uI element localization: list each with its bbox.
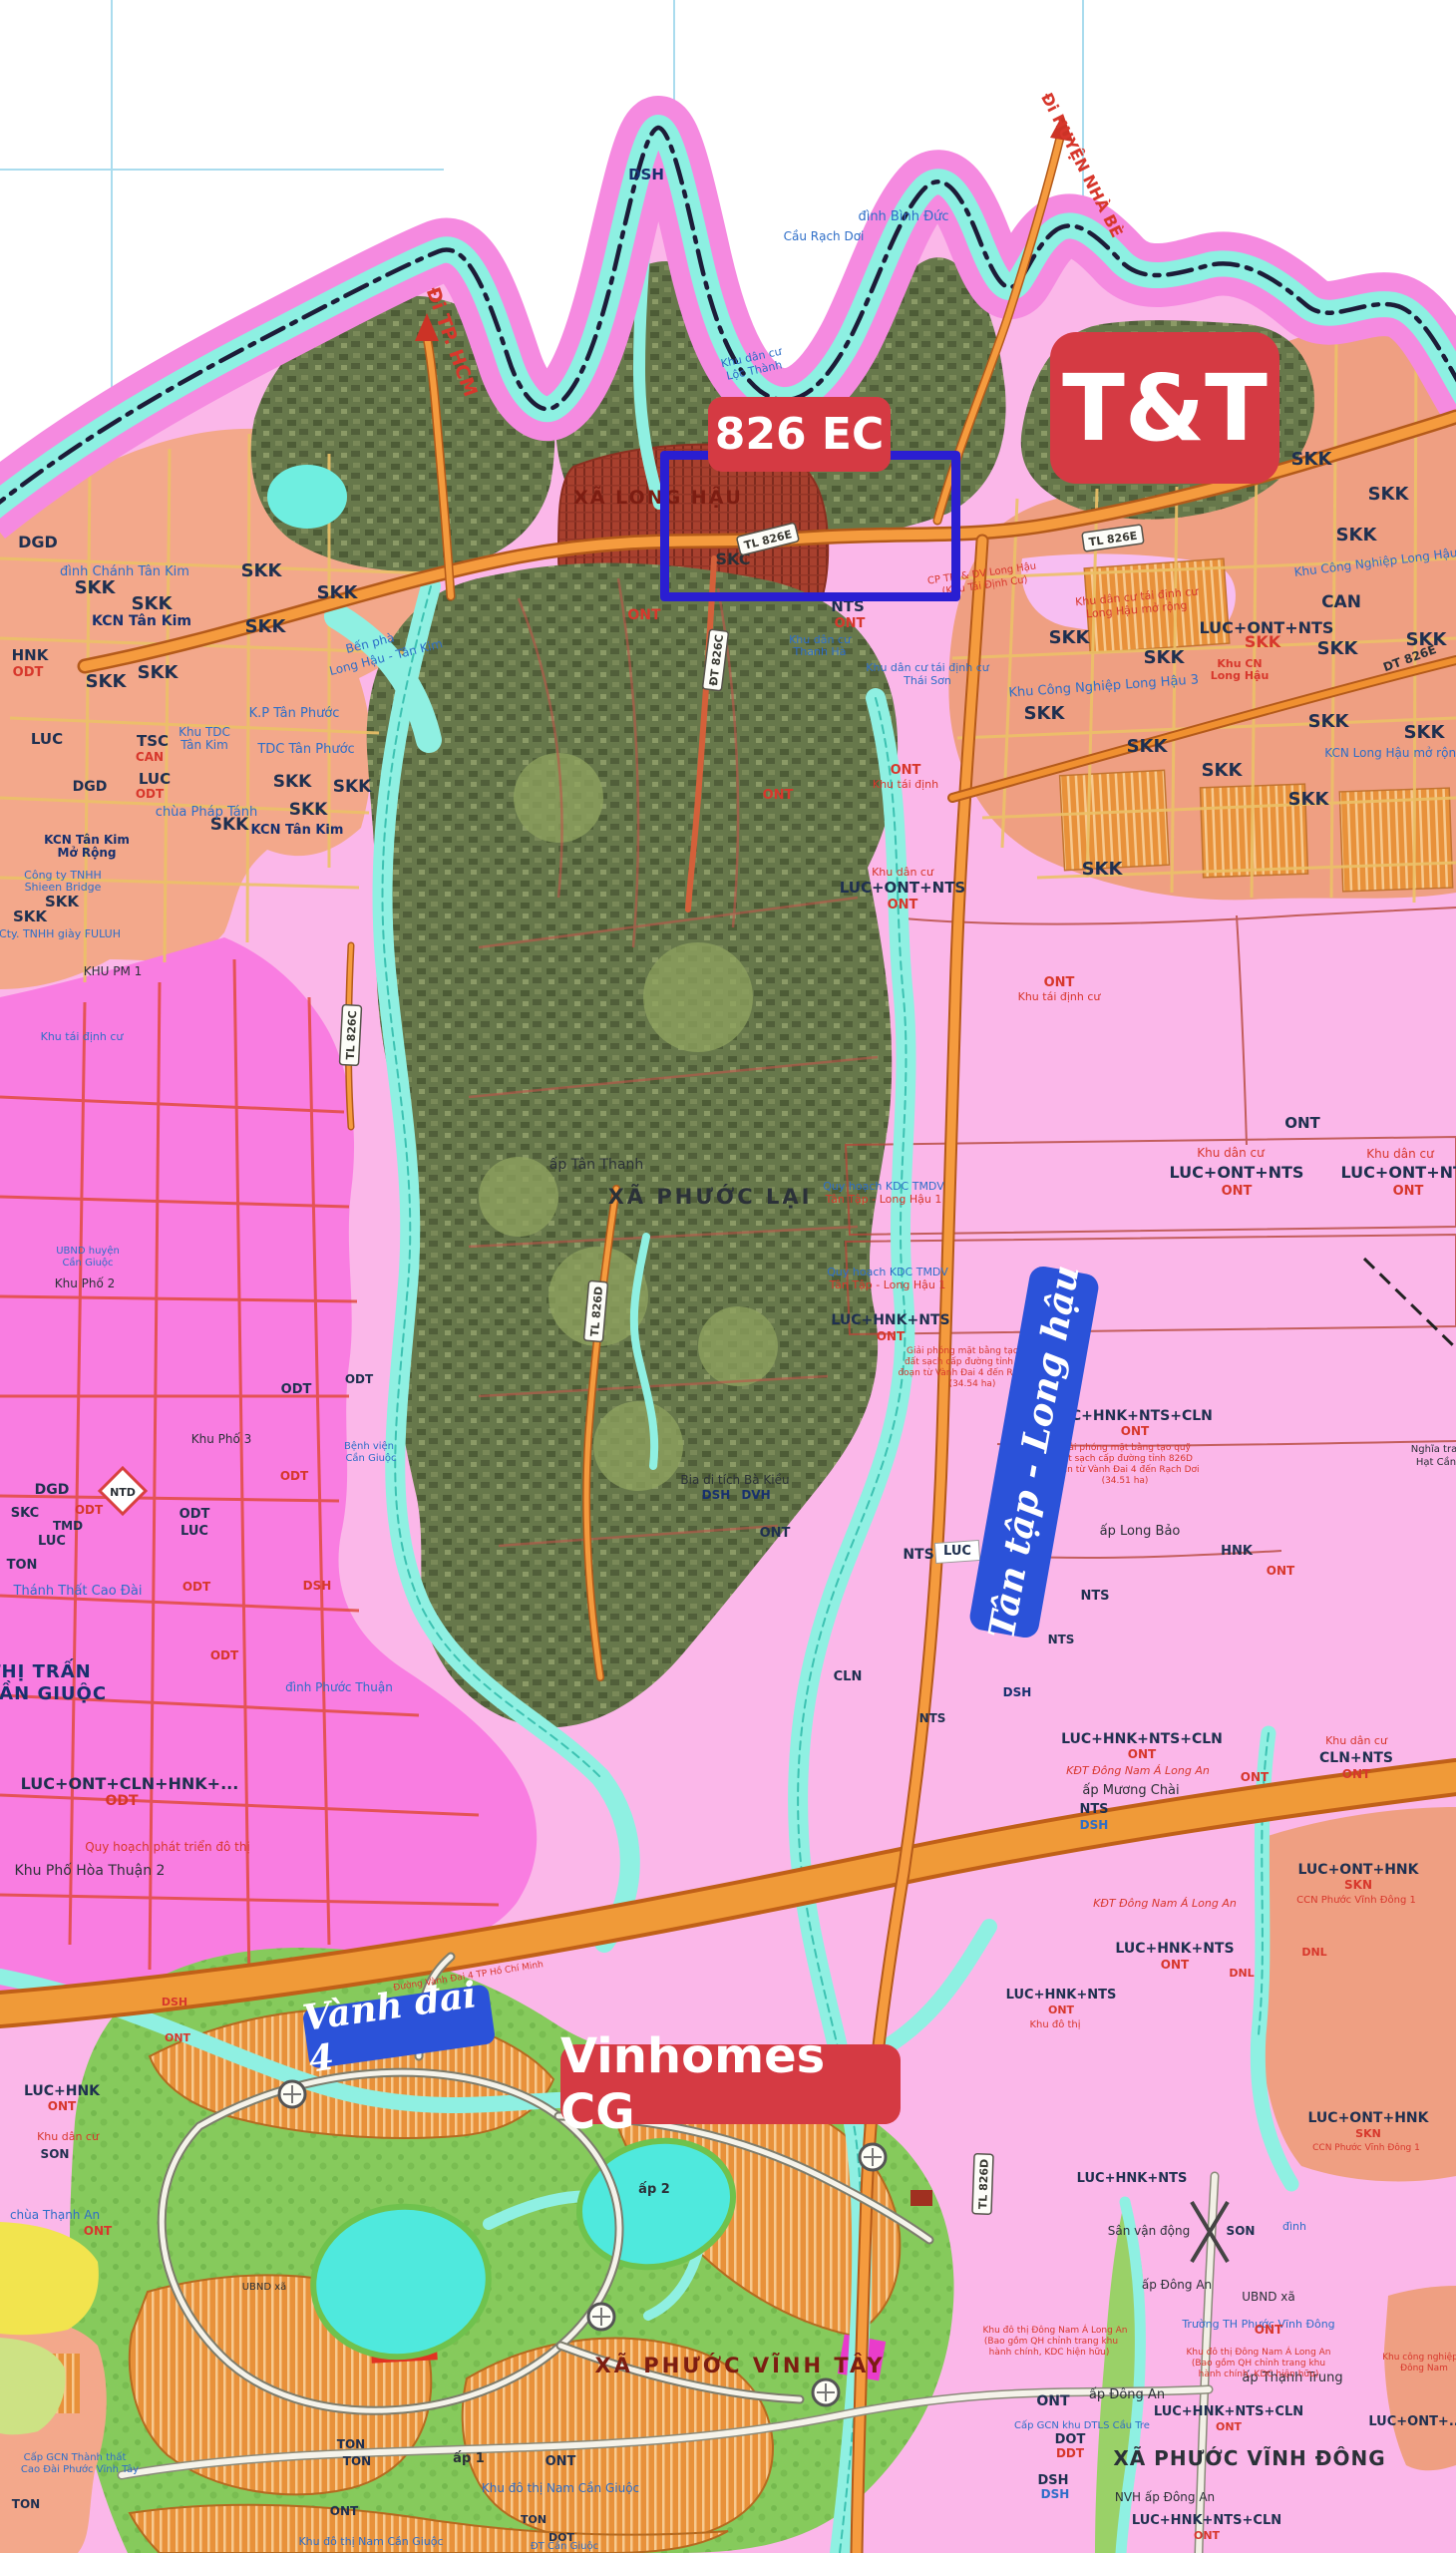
svg-text:Tân Tập - Long Hậu 1: Tân Tập - Long Hậu 1 [825, 1193, 942, 1206]
svg-text:đất sạch cấp đường tỉnh 826D: đất sạch cấp đường tỉnh 826D [1057, 1453, 1193, 1464]
svg-text:Cao Đài Phước Vĩnh Tây: Cao Đài Phước Vĩnh Tây [21, 2463, 139, 2475]
svg-text:ODT: ODT [136, 787, 165, 801]
svg-text:TMD: TMD [53, 1519, 83, 1533]
svg-text:SKK: SKK [13, 908, 48, 925]
svg-text:CAN: CAN [1321, 592, 1361, 612]
highlight-rectangle-826ec [660, 451, 960, 601]
svg-text:Khu dân cư: Khu dân cư [1366, 1147, 1435, 1161]
svg-text:Long Hậu: Long Hậu [1211, 669, 1270, 682]
svg-text:TON: TON [337, 2437, 365, 2451]
svg-text:ấp 2: ấp 2 [638, 2182, 670, 2197]
svg-text:KĐT Đông Nam Á Long An: KĐT Đông Nam Á Long An [1066, 1764, 1210, 1777]
svg-text:XÃ PHƯỚC LẠI: XÃ PHƯỚC LẠI [608, 1184, 813, 1209]
svg-text:LUC: LUC [181, 1524, 208, 1539]
svg-text:ONT: ONT [888, 898, 918, 912]
svg-text:ONT: ONT [1393, 1184, 1424, 1199]
svg-text:UBND huyện: UBND huyện [56, 1245, 120, 1257]
svg-text:ấp 1: ấp 1 [453, 2451, 485, 2466]
svg-text:ODT: ODT [280, 1469, 309, 1483]
svg-text:CẦN GIUỘC: CẦN GIUỘC [0, 1680, 107, 1704]
svg-text:K.P Tân Phước: K.P Tân Phước [249, 706, 340, 721]
svg-text:Tân Kim: Tân Kim [180, 738, 228, 752]
svg-text:SKK: SKK [132, 593, 174, 614]
svg-text:Tân Tập - Long Hậu 1: Tân Tập - Long Hậu 1 [829, 1278, 946, 1291]
svg-text:Hạt Cần: Hạt Cần [1416, 1456, 1456, 1468]
svg-text:CLN+NTS: CLN+NTS [1319, 1750, 1393, 1766]
svg-text:TON: TON [343, 2454, 371, 2468]
svg-text:Thái Sơn: Thái Sơn [903, 674, 951, 687]
svg-text:Cty. TNHH giày FULUH: Cty. TNHH giày FULUH [0, 927, 121, 940]
svg-text:Thánh Thất Cao Đài: Thánh Thất Cao Đài [13, 1584, 143, 1599]
svg-text:NTD: NTD [110, 1486, 136, 1499]
svg-text:SKK: SKK [1404, 722, 1446, 743]
svg-text:SKK: SKK [317, 582, 359, 603]
svg-text:SKK: SKK [1308, 711, 1350, 732]
svg-text:LUC+ONT+NTS: LUC+ONT+NTS [1341, 1163, 1456, 1182]
svg-text:ONT: ONT [835, 616, 866, 631]
svg-text:CCN Phước Vĩnh Đông 1: CCN Phước Vĩnh Đông 1 [1312, 2142, 1420, 2153]
svg-text:SKK: SKK [289, 800, 328, 820]
svg-text:DVH: DVH [741, 1488, 770, 1502]
svg-text:NTS: NTS [1048, 1633, 1075, 1646]
svg-text:DGD: DGD [35, 1482, 70, 1498]
svg-text:chùa Thạnh An: chùa Thạnh An [10, 2208, 100, 2222]
svg-text:NTS: NTS [1080, 1589, 1109, 1604]
svg-text:ấp Mương Chài: ấp Mương Chài [1082, 1783, 1179, 1798]
svg-text:DSH: DSH [702, 1488, 731, 1502]
svg-text:SKK: SKK [75, 577, 117, 598]
svg-text:ODT: ODT [281, 1382, 312, 1397]
svg-text:ODT: ODT [182, 1580, 211, 1594]
svg-text:DSH: DSH [162, 1996, 187, 2008]
svg-text:TDC Tân Phước: TDC Tân Phước [256, 742, 354, 757]
svg-text:KCN Tân Kim: KCN Tân Kim [44, 833, 130, 847]
svg-text:DSH: DSH [303, 1579, 332, 1593]
svg-text:LUC+ONT+CLN+HNK+...: LUC+ONT+CLN+HNK+... [21, 1774, 239, 1793]
svg-text:Bia di tích Bà Kiều: Bia di tích Bà Kiều [680, 1473, 789, 1487]
svg-text:DOT: DOT [1055, 2432, 1086, 2447]
svg-text:SKK: SKK [333, 777, 372, 797]
svg-text:LUC: LUC [38, 1534, 66, 1549]
svg-text:ONT: ONT [1284, 1114, 1320, 1132]
svg-text:DNL: DNL [1229, 1967, 1254, 1980]
svg-text:Giải phóng mặt bằng tạo quỹ: Giải phóng mặt bằng tạo quỹ [1059, 1442, 1192, 1453]
svg-text:LUC+ONT+NTS: LUC+ONT+NTS [1170, 1163, 1304, 1182]
svg-text:LUC+HNK+NTS: LUC+HNK+NTS [1077, 2171, 1188, 2186]
svg-text:KCN Long Hậu mở rộng: KCN Long Hậu mở rộng [1324, 746, 1456, 760]
svg-text:Quy hoạch KDC TMDV: Quy hoạch KDC TMDV [823, 1180, 944, 1193]
svg-text:Sân vận động: Sân vận động [1108, 2224, 1190, 2238]
svg-text:DGD: DGD [73, 779, 108, 795]
svg-text:ĐT Cần Giuộc: ĐT Cần Giuộc [531, 2540, 598, 2552]
svg-text:Khu đô thị: Khu đô thị [1029, 2018, 1080, 2030]
svg-text:Khu Phố Hòa Thuận 2: Khu Phố Hòa Thuận 2 [15, 1862, 166, 1879]
svg-text:SKK: SKK [1336, 525, 1378, 546]
svg-text:ODT: ODT [345, 1372, 374, 1386]
svg-text:Khu dân cư: Khu dân cư [872, 866, 934, 879]
svg-text:LUC+ONT+NTS: LUC+ONT+NTS [840, 879, 965, 897]
svg-text:TON: TON [12, 2497, 40, 2511]
svg-text:THỊ TRẤN: THỊ TRẤN [0, 1658, 92, 1682]
svg-text:ONT: ONT [1194, 2529, 1221, 2542]
svg-text:LUC+HNK: LUC+HNK [24, 2083, 101, 2099]
svg-text:SKK: SKK [1144, 647, 1186, 668]
svg-text:CCN Phước Vĩnh Đông 1: CCN Phước Vĩnh Đông 1 [1296, 1894, 1416, 1906]
svg-text:SKN: SKN [1355, 2127, 1381, 2140]
svg-text:ONT: ONT [546, 2454, 576, 2469]
svg-text:SON: SON [41, 2147, 70, 2161]
svg-text:CAN: CAN [136, 750, 164, 764]
svg-text:Khu tái định cư: Khu tái định cư [41, 1030, 125, 1043]
svg-text:LUC+HNK+NTS: LUC+HNK+NTS [1006, 1988, 1117, 2003]
svg-text:SKK: SKK [45, 893, 80, 911]
svg-text:DSH: DSH [628, 166, 664, 183]
svg-text:KCN Tân Kim: KCN Tân Kim [92, 613, 191, 629]
svg-text:Khu Phố 3: Khu Phố 3 [191, 1432, 252, 1446]
svg-text:ONT: ONT [760, 1526, 791, 1541]
svg-text:ODT: ODT [75, 1503, 104, 1517]
svg-text:LUC: LUC [943, 1544, 971, 1559]
svg-text:DSH: DSH [1041, 2487, 1070, 2501]
svg-text:LUC: LUC [139, 770, 171, 788]
svg-text:TON: TON [7, 1558, 38, 1573]
svg-text:(34.54 ha): (34.54 ha) [949, 1379, 996, 1389]
svg-text:LUC+ONT+NTS: LUC+ONT+NTS [1200, 618, 1334, 637]
svg-text:ONT: ONT [1048, 2004, 1075, 2016]
svg-text:SKK: SKK [245, 616, 287, 637]
svg-text:ONT: ONT [1161, 1958, 1190, 1972]
svg-text:ONT: ONT [763, 788, 794, 803]
svg-text:ONT: ONT [84, 2224, 113, 2238]
svg-text:Thanh Hà: Thanh Hà [793, 645, 847, 658]
svg-text:SKK: SKK [1127, 736, 1169, 757]
svg-text:Cầu Rạch Dơi: Cầu Rạch Dơi [784, 229, 865, 243]
svg-text:SKN: SKN [1344, 1878, 1372, 1892]
svg-text:LUC+HNK+NTS+CLN: LUC+HNK+NTS+CLN [1154, 2404, 1303, 2419]
svg-text:hành chính, KDC hiện hữu): hành chính, KDC hiện hữu) [989, 2347, 1110, 2358]
svg-text:ODT: ODT [180, 1507, 210, 1522]
svg-text:UBND xã: UBND xã [1242, 2290, 1295, 2304]
svg-text:Cần Giuộc: Cần Giuộc [62, 1257, 113, 1269]
svg-text:DSH: DSH [1003, 1685, 1032, 1699]
svg-text:chùa Pháp Tánh: chùa Pháp Tánh [156, 805, 257, 820]
svg-text:ONT: ONT [165, 2031, 191, 2044]
svg-text:Bệnh viện: Bệnh viện [344, 1440, 394, 1452]
svg-text:HNK: HNK [12, 646, 50, 664]
svg-text:Cấp GCN khu DTLS Cầu Tre: Cấp GCN khu DTLS Cầu Tre [1014, 2419, 1150, 2431]
svg-text:TL 826D: TL 826D [976, 2159, 991, 2210]
svg-text:Đông Nam: Đông Nam [1400, 2363, 1448, 2373]
svg-text:Khu công nghiệp: Khu công nghiệp [1382, 2352, 1456, 2363]
svg-text:đình Phước Thuận: đình Phước Thuận [285, 1680, 393, 1694]
svg-text:NTS: NTS [903, 1547, 933, 1563]
svg-text:XÃ PHƯỚC VĨNH ĐÔNG: XÃ PHƯỚC VĨNH ĐÔNG [1113, 2446, 1385, 2470]
svg-text:LUC+ONT+HNK: LUC+ONT+HNK [1298, 1862, 1420, 1878]
svg-text:SKK: SKK [273, 772, 312, 792]
svg-text:SKK: SKK [86, 671, 128, 692]
svg-text:SKK: SKK [1368, 484, 1410, 505]
banner-vanh-dai-4: Vành đai 4 [302, 1984, 497, 2069]
svg-text:LUC+HNK+NTS+CLN: LUC+HNK+NTS+CLN [1132, 2513, 1281, 2528]
svg-text:ONT: ONT [627, 607, 661, 623]
svg-text:Khu đô thị Đông Nam Á Long An: Khu đô thị Đông Nam Á Long An [983, 2324, 1128, 2336]
svg-text:Khu tái định cư: Khu tái định cư [1018, 990, 1102, 1003]
svg-text:KĐT Đông Nam Á Long An: KĐT Đông Nam Á Long An [1093, 1897, 1237, 1910]
svg-text:XÃ PHƯỚC VĨNH TÂY: XÃ PHƯỚC VĨNH TÂY [594, 2353, 885, 2377]
svg-text:đoạn từ Vành Đai 4 đến Rạch Dơ: đoạn từ Vành Đai 4 đến Rạch Dơi [1050, 1464, 1199, 1475]
svg-text:ONT: ONT [1241, 1770, 1270, 1784]
svg-text:SKK: SKK [1288, 789, 1330, 810]
svg-text:Khu đô thị Nam Cần Giuộc: Khu đô thị Nam Cần Giuộc [482, 2481, 639, 2495]
map-screenshot: DSHđình Bình ĐứcCầu Rạch DơiĐi TP. HCMĐi… [0, 0, 1456, 2553]
svg-text:DNL: DNL [1301, 1946, 1326, 1959]
badge-tt: T&T [1050, 332, 1279, 484]
svg-text:ONT: ONT [1036, 2393, 1070, 2409]
svg-text:LUC+ONT+...: LUC+ONT+... [1368, 2414, 1456, 2429]
svg-text:LUC: LUC [31, 730, 63, 748]
road-badge: TL 826D [972, 2154, 993, 2215]
svg-text:Khu tái định: Khu tái định [873, 778, 938, 791]
svg-text:SKK: SKK [1024, 703, 1066, 724]
svg-text:ONT: ONT [1121, 1424, 1150, 1438]
svg-text:KCN Tân Kim: KCN Tân Kim [251, 823, 344, 838]
badge-vinhomes-label: Vinhomes CG [560, 2028, 901, 2140]
svg-text:ONT: ONT [1255, 2323, 1283, 2337]
svg-text:Khu đô thị Nam Cần Giuộc: Khu đô thị Nam Cần Giuộc [298, 2535, 443, 2548]
svg-text:ONT: ONT [330, 2504, 359, 2518]
svg-text:ONT: ONT [1342, 1767, 1371, 1781]
svg-text:LUC+ONT+HNK: LUC+ONT+HNK [1308, 2110, 1430, 2126]
road-badge: TL 826C [339, 1005, 361, 1066]
svg-text:SKK: SKK [1202, 760, 1244, 781]
svg-text:ONT: ONT [891, 763, 921, 778]
svg-text:ấp Tân Thanh: ấp Tân Thanh [549, 1157, 644, 1173]
svg-text:ONT: ONT [1128, 1747, 1157, 1761]
svg-text:Khu dân cư tái định cư: Khu dân cư tái định cư [866, 661, 989, 674]
svg-text:ONT: ONT [1216, 2420, 1243, 2433]
svg-text:Khu dân cư: Khu dân cư [1197, 1146, 1266, 1160]
svg-text:SKK: SKK [1291, 449, 1333, 470]
svg-text:ONT: ONT [1044, 975, 1075, 990]
svg-text:ONT: ONT [877, 1329, 906, 1343]
svg-text:ONT: ONT [1222, 1184, 1253, 1199]
svg-text:Khu dân cư: Khu dân cư [37, 2130, 100, 2143]
svg-text:Khu Phố 2: Khu Phố 2 [55, 1276, 116, 1290]
svg-text:TL 826C: TL 826C [344, 1010, 360, 1060]
badge-826ec: 826 EC [708, 397, 891, 472]
svg-text:DSH: DSH [1080, 1818, 1109, 1832]
svg-text:ODT: ODT [105, 1793, 139, 1809]
svg-text:TSC: TSC [137, 732, 169, 750]
svg-text:Quy hoạch KDC TMDV: Quy hoạch KDC TMDV [827, 1266, 948, 1278]
svg-text:NTS: NTS [1079, 1802, 1108, 1817]
svg-text:Quy hoạch phát triển đô thị: Quy hoạch phát triển đô thị [85, 1840, 250, 1854]
svg-text:Nghĩa tra: Nghĩa tra [1411, 1444, 1456, 1455]
badge-vinhomes-cg: Vinhomes CG [560, 2044, 901, 2124]
svg-text:CLN: CLN [834, 1669, 863, 1684]
svg-text:đình Bình Đức: đình Bình Đức [858, 209, 948, 224]
svg-text:LUC+HNK+NTS: LUC+HNK+NTS [831, 1312, 949, 1328]
badge-tt-label: T&T [1062, 355, 1268, 462]
svg-text:LUC+HNK+NTS+CLN: LUC+HNK+NTS+CLN [1061, 1731, 1223, 1747]
svg-text:DGD: DGD [18, 533, 58, 551]
svg-text:DDT: DDT [1056, 2446, 1085, 2460]
badge-826ec-label: 826 EC [715, 409, 885, 460]
svg-text:HNK: HNK [1221, 1544, 1254, 1559]
svg-text:SKK: SKK [1082, 859, 1124, 880]
svg-text:SKK: SKK [1317, 638, 1359, 659]
svg-text:ấp Đông An: ấp Đông An [1089, 2387, 1165, 2402]
svg-text:ấp Long Bảo: ấp Long Bảo [1100, 1524, 1181, 1539]
svg-text:DSH: DSH [1037, 2473, 1068, 2488]
svg-text:SON: SON [1227, 2224, 1256, 2238]
svg-text:SKK: SKK [241, 560, 283, 581]
svg-text:KHU PM 1: KHU PM 1 [84, 964, 143, 978]
svg-text:(Bao gồm QH chỉnh trang khu: (Bao gồm QH chỉnh trang khu [984, 2336, 1118, 2347]
svg-text:LUC+HNK+NTS: LUC+HNK+NTS [1115, 1941, 1234, 1957]
svg-text:(Bao gồm QH chỉnh trang khu: (Bao gồm QH chỉnh trang khu [1192, 2358, 1325, 2369]
svg-text:ODT: ODT [13, 665, 44, 680]
svg-text:NTS: NTS [919, 1711, 946, 1725]
svg-text:đình: đình [1282, 2220, 1306, 2233]
svg-text:SKK: SKK [138, 662, 180, 683]
svg-text:NVH ấp Đông An: NVH ấp Đông An [1115, 2490, 1215, 2504]
svg-text:Mở Rộng: Mở Rộng [58, 846, 117, 860]
svg-text:hành chính, KDC hiện hữu): hành chính, KDC hiện hữu) [1199, 2369, 1319, 2379]
svg-text:Khu TDC: Khu TDC [179, 725, 230, 739]
svg-text:(34.51 ha): (34.51 ha) [1102, 1476, 1149, 1486]
svg-text:TON: TON [521, 2513, 546, 2526]
svg-text:Cấp GCN Thành thất: Cấp GCN Thành thất [24, 2451, 127, 2463]
svg-text:SKC: SKC [11, 1506, 39, 1521]
svg-text:ONT: ONT [48, 2099, 77, 2113]
svg-text:Cần Giuộc: Cần Giuộc [345, 1452, 396, 1464]
svg-text:SKK: SKK [1049, 627, 1091, 648]
svg-text:Khu đô thị Đông Nam Á Long An: Khu đô thị Đông Nam Á Long An [1187, 2346, 1331, 2358]
svg-text:UBND xã: UBND xã [242, 2282, 287, 2293]
svg-text:ONT: ONT [1267, 1564, 1295, 1578]
svg-text:ấp Đông An: ấp Đông An [1142, 2278, 1212, 2292]
svg-text:ODT: ODT [210, 1648, 239, 1662]
svg-text:Khu dân cư: Khu dân cư [1325, 1734, 1388, 1747]
